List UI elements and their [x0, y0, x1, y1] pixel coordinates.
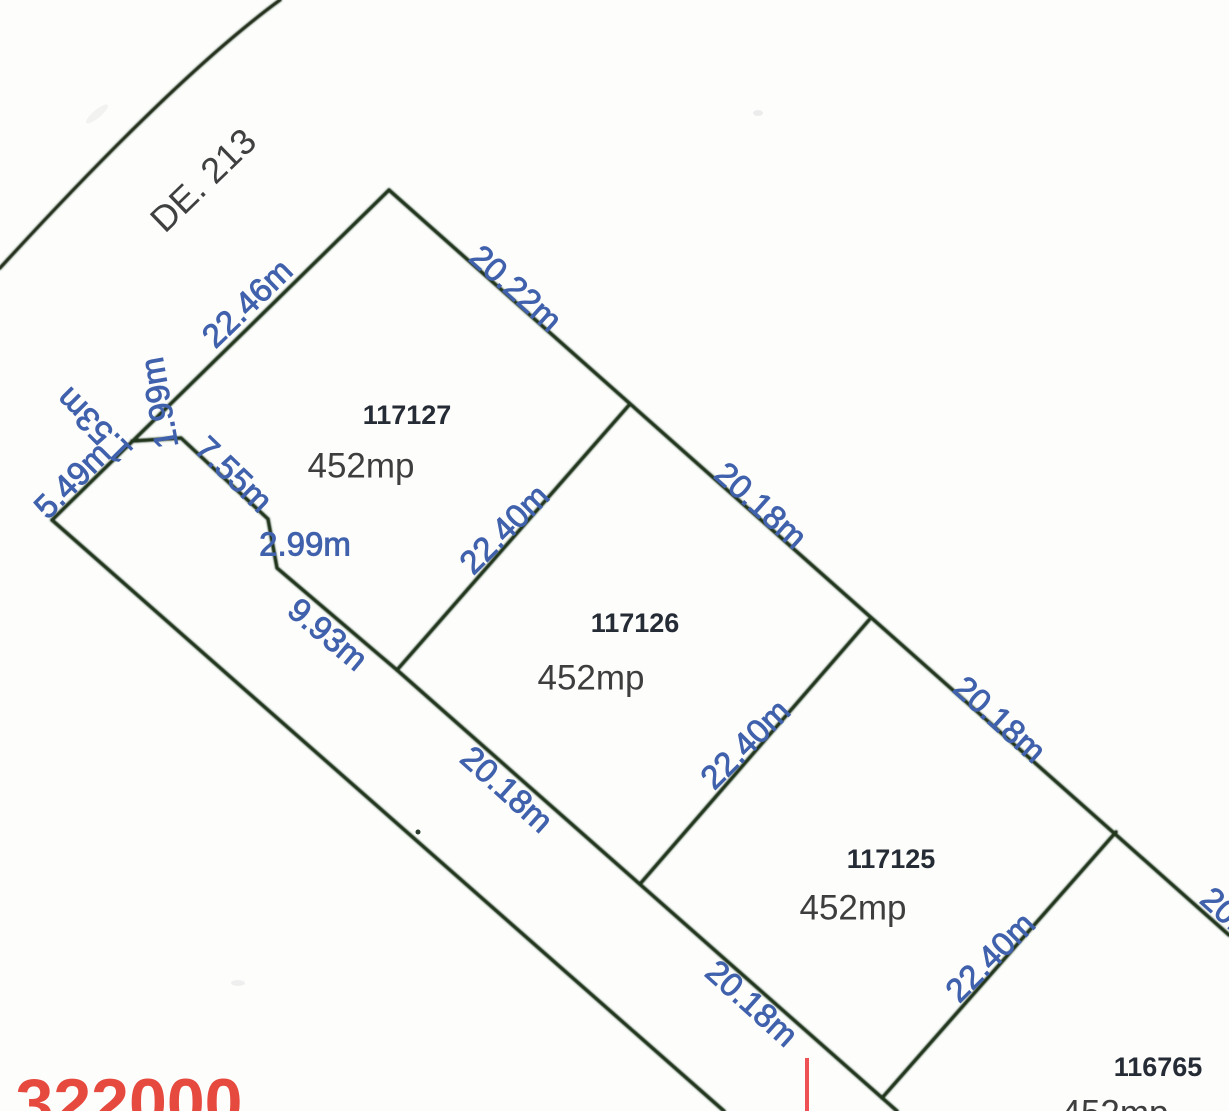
svg-text:452mp: 452mp — [307, 447, 414, 486]
svg-text:452mp: 452mp — [1061, 1094, 1168, 1111]
svg-text:452mp: 452mp — [537, 659, 644, 698]
svg-text:117127: 117127 — [363, 400, 452, 430]
svg-text:117125: 117125 — [847, 844, 936, 874]
svg-text:116765: 116765 — [1114, 1052, 1203, 1082]
svg-text:322000: 322000 — [16, 1065, 243, 1111]
svg-text:452mp: 452mp — [799, 889, 906, 928]
svg-text:117126: 117126 — [591, 608, 680, 638]
svg-text:2.99m: 2.99m — [259, 526, 351, 563]
